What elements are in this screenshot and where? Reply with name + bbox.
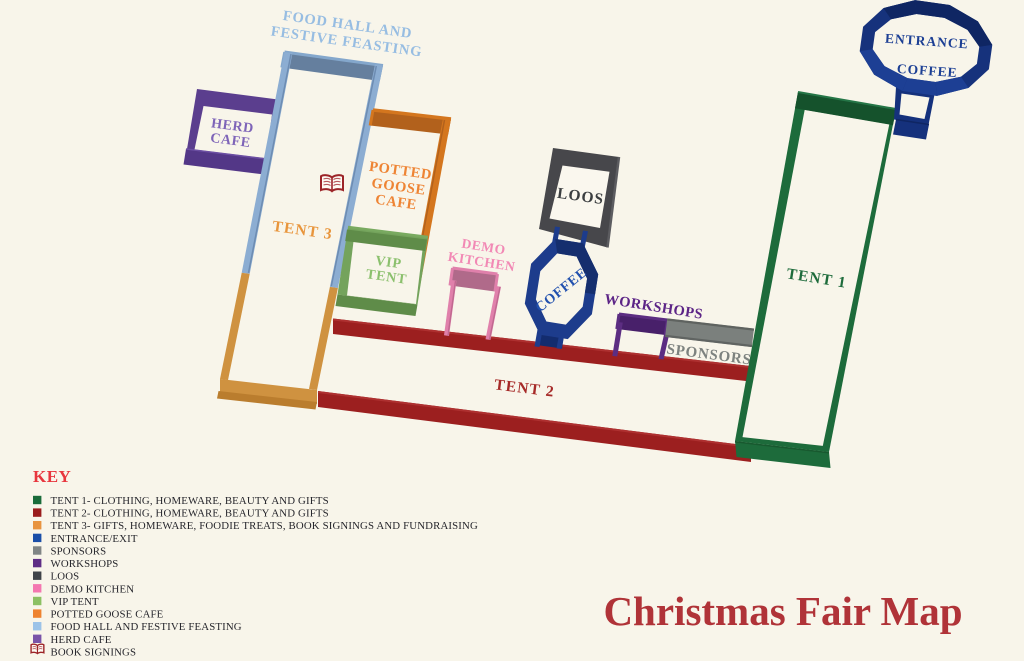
svg-text:ENTRANCE/EXIT: ENTRANCE/EXIT — [51, 533, 138, 545]
svg-text:TENT 3- GIFTS, HOMEWARE, FOODI: TENT 3- GIFTS, HOMEWARE, FOODIE TREATS, … — [51, 520, 478, 532]
svg-text:TENT 2- CLOTHING, HOMEWARE, BE: TENT 2- CLOTHING, HOMEWARE, BEAUTY AND G… — [51, 508, 329, 520]
svg-text:KEY: KEY — [33, 467, 71, 486]
svg-text:DEMO KITCHEN: DEMO KITCHEN — [51, 583, 135, 595]
svg-text:HERD CAFE: HERD CAFE — [51, 634, 112, 646]
svg-text:TENT 1- CLOTHING, HOMEWARE, BE: TENT 1- CLOTHING, HOMEWARE, BEAUTY AND G… — [51, 495, 329, 507]
svg-text:POTTED GOOSE CAFE: POTTED GOOSE CAFE — [51, 609, 164, 621]
svg-text:WORKSHOPS: WORKSHOPS — [51, 558, 119, 570]
svg-text:SPONSORS: SPONSORS — [51, 545, 107, 557]
svg-text:BOOK SIGNINGS: BOOK SIGNINGS — [51, 646, 137, 658]
svg-text:LOOS: LOOS — [51, 571, 80, 583]
svg-text:VIP TENT: VIP TENT — [51, 596, 100, 608]
svg-text:FOOD HALL AND FESTIVE FEASTING: FOOD HALL AND FESTIVE FEASTING — [51, 621, 242, 633]
svg-text:Christmas Fair Map: Christmas Fair Map — [603, 588, 962, 634]
